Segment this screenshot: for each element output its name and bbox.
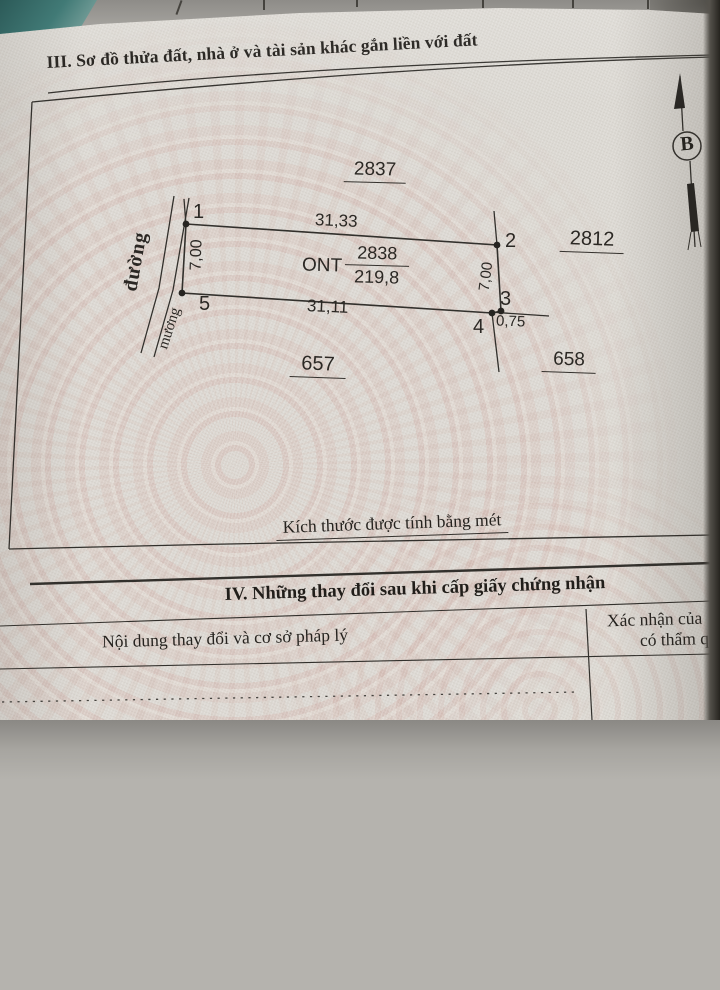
point-label-5: 5 [199, 293, 210, 316]
adjacent-parcel-southwest: 657 [290, 352, 347, 379]
parcel-number: 2838 [345, 242, 410, 266]
land-use-code: ONT [302, 254, 343, 277]
point-label-1: 1 [193, 201, 204, 224]
ruler-tick [482, 0, 484, 8]
ext-line-p2 [494, 211, 497, 245]
north-arrow-head [674, 73, 685, 109]
north-compass-label: B [677, 132, 697, 156]
corner-dot-2 [494, 242, 501, 249]
table-header-bottom-rule [0, 654, 712, 669]
ruler-tick [572, 0, 574, 8]
adjacent-parcel-southeast: 658 [542, 348, 597, 374]
dimension-bottom-edge: 31,11 [307, 296, 349, 318]
ruler-tick [263, 0, 265, 10]
table-column-divider [586, 609, 592, 720]
ruler-tick [647, 0, 649, 9]
page-edge-shadow [703, 0, 720, 720]
dotted-entry-line [2, 692, 578, 702]
table-header-right-line2: có thẩm q [640, 628, 710, 651]
corner-dot-4 [489, 310, 496, 317]
point-label-4: 4 [473, 316, 484, 339]
corner-dot-5 [179, 290, 186, 297]
corner-dot-1 [183, 221, 190, 228]
ruler-tick [356, 0, 358, 7]
photo-of-land-certificate: { "document": { "section3_title": "III. … [0, 0, 720, 720]
section4-heading-rule [0, 601, 712, 626]
point-label-2: 2 [505, 230, 516, 253]
dimension-top-edge: 31,33 [315, 210, 358, 232]
parcel-area: 219,8 [344, 264, 409, 289]
box-left-border [9, 102, 32, 549]
point-label-3: 3 [500, 288, 511, 311]
adjacent-parcel-east: 2812 [560, 227, 625, 254]
north-arrow-tail-bar [687, 183, 699, 232]
dimension-left-edge: 7,00 [187, 234, 206, 277]
adjacent-parcel-north: 2837 [344, 158, 407, 184]
certificate-page: III. Sơ đồ thửa đất, nhà ở và tài sản kh… [0, 0, 714, 720]
dimension-offset: 0,75 [496, 312, 526, 330]
parcel-number-area-fraction: 2838 219,8 [344, 242, 409, 289]
